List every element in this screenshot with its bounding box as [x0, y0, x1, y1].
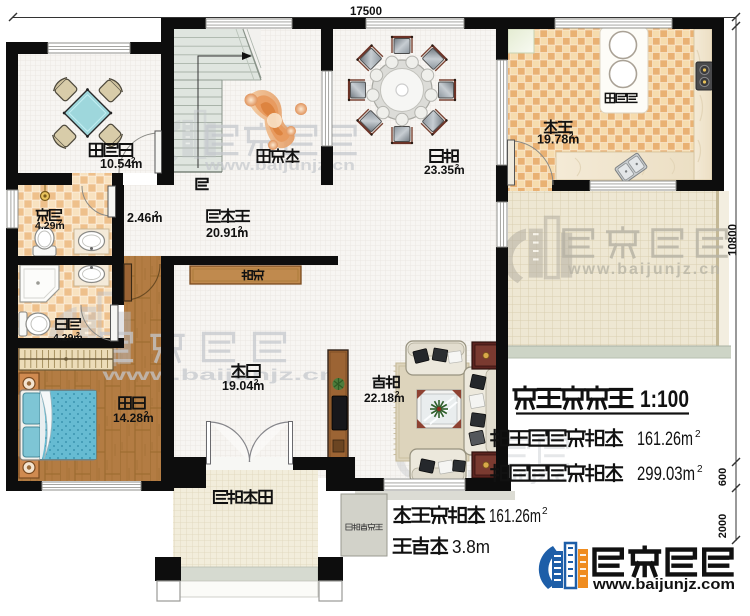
- svg-text:2: 2: [58, 220, 62, 227]
- svg-text:600: 600: [717, 468, 729, 486]
- svg-text:www.baijunjz.cn: www.baijunjz.cn: [101, 367, 338, 384]
- svg-text:www.baijunjz.com: www.baijunjz.com: [592, 577, 735, 593]
- svg-text:2: 2: [144, 410, 149, 419]
- svg-text:2: 2: [455, 162, 459, 171]
- svg-text:2: 2: [569, 132, 574, 141]
- svg-text:2: 2: [131, 156, 136, 165]
- svg-text:2: 2: [254, 378, 259, 387]
- svg-text:2: 2: [154, 210, 159, 219]
- svg-text:10.54m: 10.54m: [100, 157, 142, 171]
- svg-text:3.8m: 3.8m: [452, 536, 490, 557]
- svg-text:1:100: 1:100: [640, 386, 689, 413]
- svg-text:161.26m: 161.26m: [489, 505, 541, 526]
- svg-text:2: 2: [238, 225, 243, 234]
- svg-text:www.baijunjz.cn: www.baijunjz.cn: [567, 261, 722, 278]
- svg-text:17500: 17500: [350, 6, 382, 18]
- svg-text:299.03m: 299.03m: [637, 464, 695, 485]
- svg-text:2: 2: [542, 506, 548, 517]
- svg-text:2000: 2000: [717, 514, 729, 538]
- svg-text:161.26m: 161.26m: [637, 429, 693, 450]
- svg-text:2: 2: [695, 429, 701, 440]
- svg-text:2: 2: [697, 464, 703, 475]
- svg-text:10800: 10800: [728, 224, 740, 256]
- svg-text:2: 2: [395, 390, 400, 399]
- svg-text:2: 2: [76, 332, 80, 339]
